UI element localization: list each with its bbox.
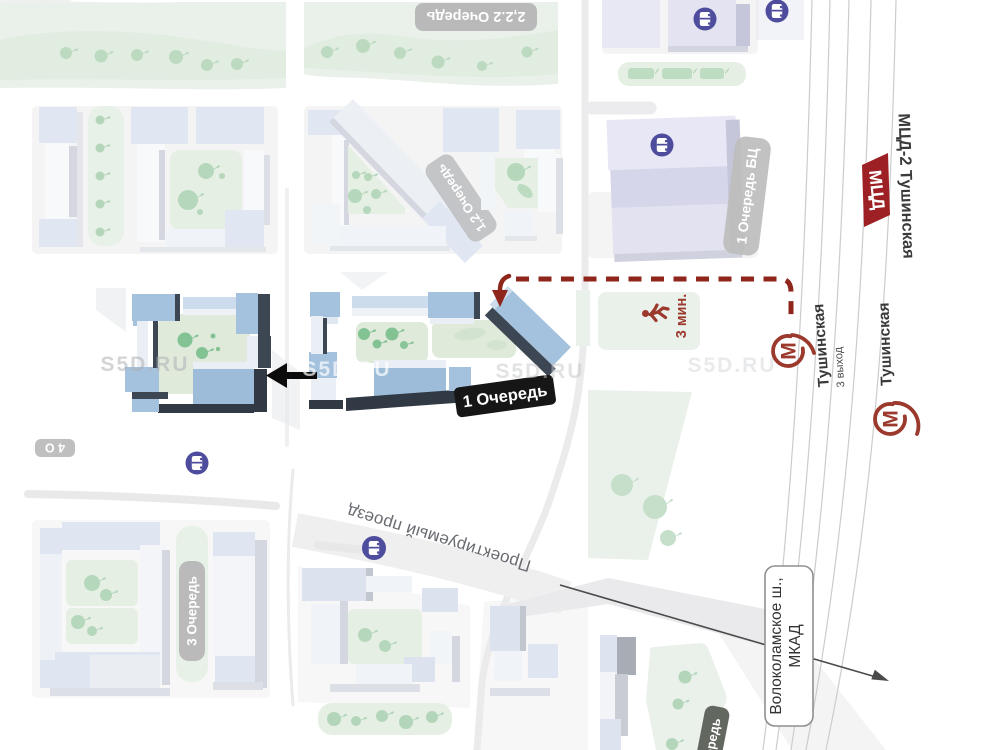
svg-text:М: М (880, 410, 903, 428)
svg-text:МЦД: МЦД (865, 169, 889, 211)
svg-text:2,2.2 Очередь: 2,2.2 Очередь (426, 8, 525, 24)
svg-text:3 Очередь: 3 Очередь (185, 576, 200, 646)
svg-text:4 О: 4 О (45, 441, 65, 455)
svg-text:S5D.RU: S5D.RU (302, 358, 391, 381)
svg-text:3 мин.: 3 мин. (674, 294, 690, 339)
svg-text:М: М (778, 342, 801, 360)
svg-text:Волоколамское ш.,: Волоколамское ш., (768, 577, 785, 714)
svg-text:Тушинская: Тушинская (876, 302, 896, 386)
svg-text:S5D.RU: S5D.RU (495, 360, 584, 383)
svg-text:МКАД: МКАД (787, 624, 804, 668)
svg-text:S5D.RU: S5D.RU (100, 353, 189, 376)
svg-text:S5D.RU: S5D.RU (687, 354, 776, 377)
